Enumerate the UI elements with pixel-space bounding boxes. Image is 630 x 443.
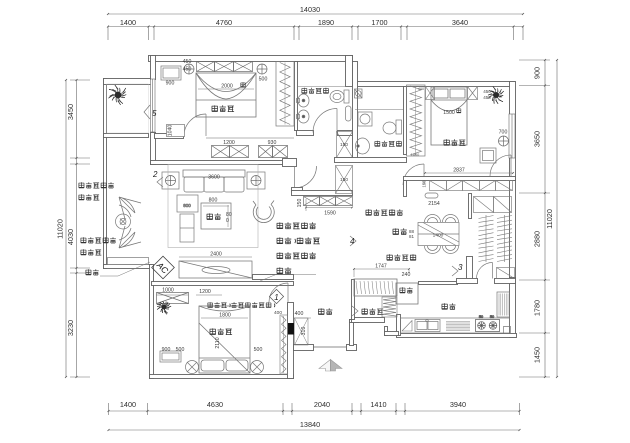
svg-text:450: 450 [483,89,491,94]
svg-text:240: 240 [402,272,411,278]
svg-text:1500: 1500 [443,110,455,116]
svg-text:11020: 11020 [56,219,65,239]
svg-text:1400: 1400 [120,400,136,409]
svg-text:400: 400 [418,87,424,91]
svg-text:450: 450 [183,67,192,73]
svg-text:3: 3 [458,263,463,272]
svg-text:50: 50 [479,315,483,319]
svg-text:1450: 1450 [533,347,542,363]
svg-text:1200: 1200 [223,140,235,146]
svg-text:5: 5 [152,109,157,118]
svg-text:4630: 4630 [207,400,223,409]
svg-text:150: 150 [422,180,427,188]
svg-text:3600: 3600 [208,175,220,181]
svg-text:1400: 1400 [120,18,136,27]
svg-text:2040: 2040 [314,400,330,409]
svg-text:500: 500 [176,347,185,353]
svg-text:3450: 3450 [66,104,75,120]
svg-text:450: 450 [183,59,192,65]
svg-text:81: 81 [409,234,415,239]
svg-text:150: 150 [340,142,348,148]
svg-text:930: 930 [268,140,277,146]
svg-text:2154: 2154 [428,201,440,207]
svg-text:1590: 1590 [324,211,336,217]
svg-text:2: 2 [152,170,158,179]
svg-text:11020: 11020 [545,209,554,229]
svg-text:1700: 1700 [371,18,387,27]
svg-text:1000: 1000 [162,288,174,294]
svg-text:700: 700 [499,130,508,136]
svg-text:3940: 3940 [450,400,466,409]
svg-text:500: 500 [254,347,263,353]
svg-text:0: 0 [226,218,229,224]
svg-text:1780: 1780 [533,300,542,316]
svg-text:2110: 2110 [215,337,221,348]
svg-text:1800: 1800 [411,153,419,157]
svg-text:1: 1 [274,293,278,302]
svg-text:3650: 3650 [533,131,542,147]
svg-text:310: 310 [301,327,307,336]
svg-text:4: 4 [350,237,355,246]
svg-text:4760: 4760 [216,18,232,27]
svg-text:450: 450 [483,95,491,100]
svg-text:1040: 1040 [168,125,174,137]
svg-text:400: 400 [295,311,304,317]
svg-text:1800: 1800 [219,313,231,319]
svg-text:3230: 3230 [66,320,75,336]
svg-text:1747: 1747 [375,264,387,270]
svg-text:900: 900 [166,81,175,87]
svg-text:3640: 3640 [452,18,468,27]
svg-text:900: 900 [162,347,171,353]
svg-text:800: 800 [183,203,191,208]
svg-text:2400: 2400 [210,252,222,258]
svg-text:2880: 2880 [533,231,542,247]
svg-text:1890: 1890 [318,18,334,27]
svg-text:4030: 4030 [66,229,75,245]
svg-text:500: 500 [259,77,268,83]
svg-text:2000: 2000 [221,84,233,90]
svg-text:13840: 13840 [300,420,320,429]
svg-text:800: 800 [209,198,218,204]
svg-text:1400: 1400 [433,233,444,239]
svg-text:1410: 1410 [370,400,386,409]
svg-text:14030: 14030 [300,5,320,14]
svg-text:50: 50 [490,315,494,319]
svg-text:150: 150 [340,177,348,183]
svg-text:150: 150 [297,199,303,208]
svg-text:2837: 2837 [453,168,465,174]
svg-text:900: 900 [533,67,542,79]
svg-text:1200: 1200 [199,289,211,295]
